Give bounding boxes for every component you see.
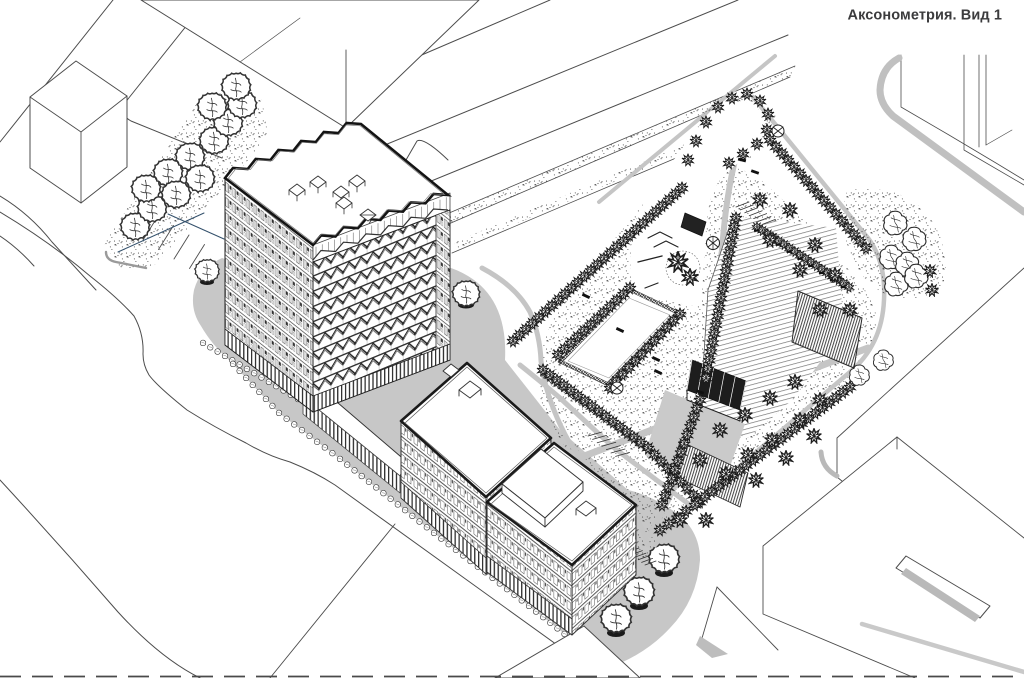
svg-text:Аксонометрия. Вид 1: Аксонометрия. Вид 1 xyxy=(848,8,1002,24)
